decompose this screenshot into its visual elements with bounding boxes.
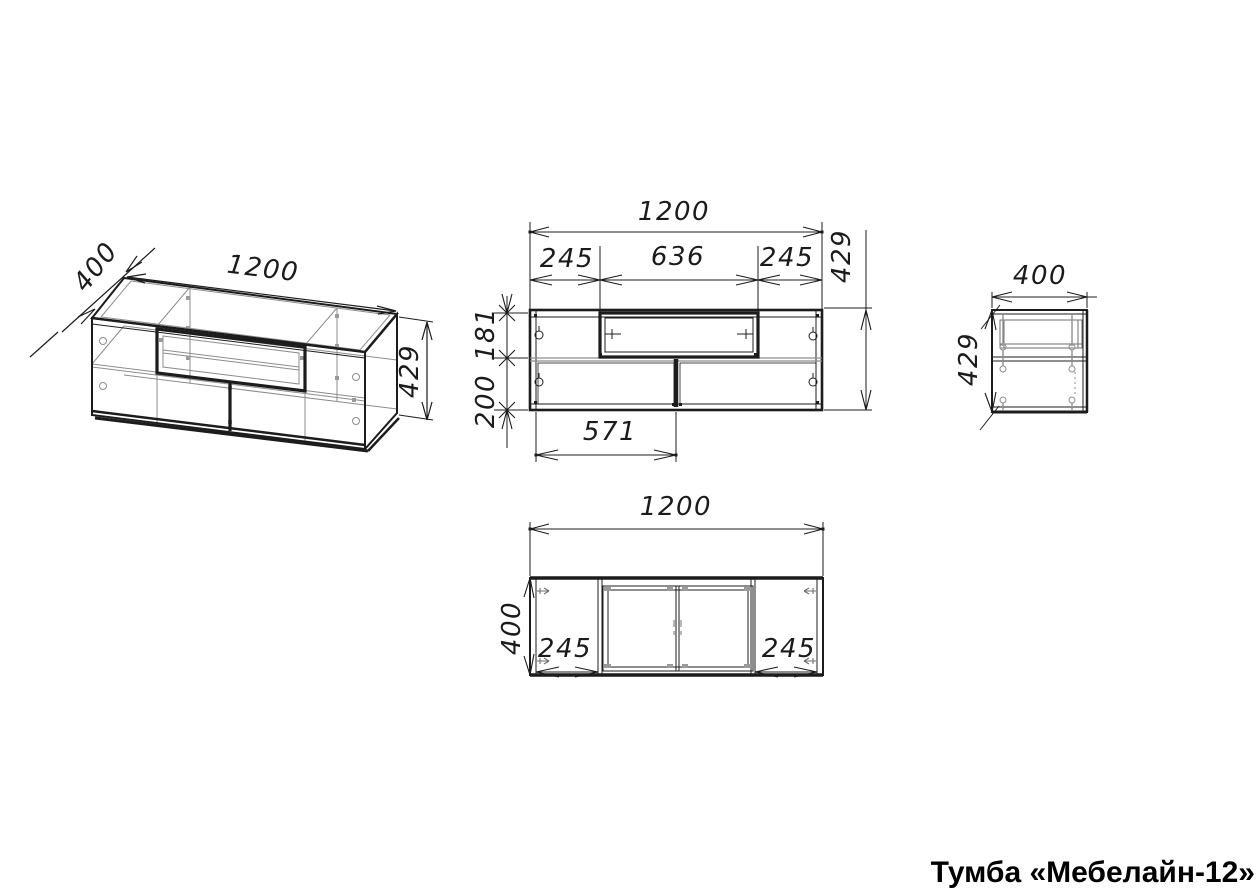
top-dim-width: 1200 xyxy=(640,492,712,522)
top-extension-lines xyxy=(530,522,823,576)
top-dim-depth: 400 xyxy=(497,601,527,655)
front-cabinet xyxy=(530,310,822,410)
blueprint-canvas: 400 1200 429 xyxy=(0,0,1260,892)
drawing-svg: 400 1200 429 xyxy=(0,0,1260,892)
front-dim-right: 245 xyxy=(760,243,814,273)
top-dim-right: 245 xyxy=(762,634,816,664)
front-door-right xyxy=(680,363,816,404)
front-dim-inner-top: 181 xyxy=(471,307,501,361)
front-dim-width: 1200 xyxy=(638,197,710,227)
iso-cabinet-outline xyxy=(92,278,399,451)
front-dim-inner-bottom: 200 xyxy=(471,374,501,428)
iso-dim-width: 1200 xyxy=(225,250,300,289)
front-view: 1200 245 636 245 429 181 200 571 xyxy=(471,197,872,462)
top-hinge-marks xyxy=(604,587,751,668)
front-dim-left: 245 xyxy=(540,244,594,274)
front-dim-height: 429 xyxy=(827,229,857,283)
top-door-assembly xyxy=(603,586,753,671)
side-dim-height: 429 xyxy=(954,332,984,386)
front-dim-door-width: 571 xyxy=(583,417,637,447)
front-door-left xyxy=(538,363,674,404)
top-view: 1200 400 245 245 xyxy=(497,492,825,677)
isometric-view: 400 1200 429 xyxy=(30,236,433,451)
side-dimensions: 400 429 xyxy=(954,261,1097,430)
drawing-title: Тумба «Мебелайн-12» xyxy=(931,856,1255,890)
side-cabinet xyxy=(992,310,1087,412)
top-dim-left: 245 xyxy=(538,634,592,664)
front-niche xyxy=(600,313,758,357)
iso-dim-height: 429 xyxy=(395,344,425,398)
front-dim-middle: 636 xyxy=(651,242,705,272)
side-view: 400 429 xyxy=(954,261,1097,430)
side-dim-depth: 400 xyxy=(1013,261,1067,291)
top-dimensions: 1200 400 245 245 xyxy=(497,492,825,677)
side-screw-symbols xyxy=(1000,314,1075,411)
